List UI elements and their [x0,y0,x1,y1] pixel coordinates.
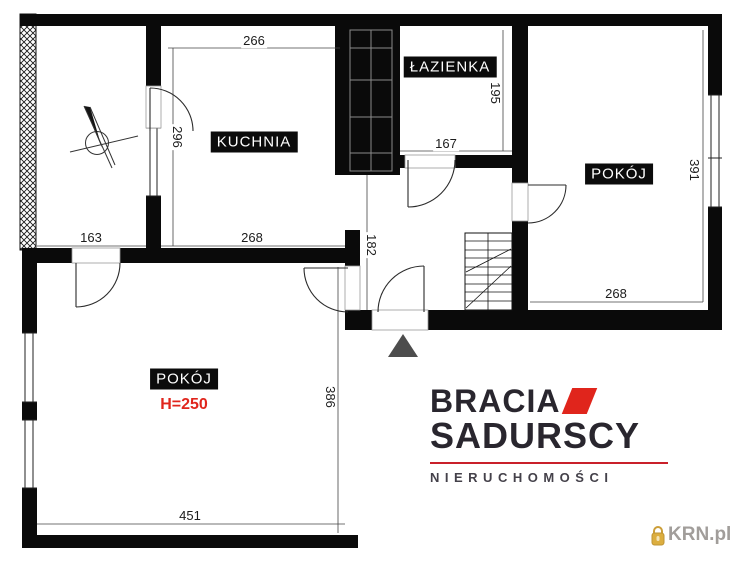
window-left-lower [22,420,37,488]
staircase [465,233,512,310]
logo-text-bracia: BRACIA [430,385,560,417]
door-room-left-from-balcony [76,263,120,307]
door-entry [378,266,424,312]
dim-balcony-bottom: 163 [78,231,104,245]
window-kitchen-internal [146,128,161,196]
dim-kitchen-left: 296 [170,124,184,150]
logo-divider [430,462,668,464]
room-label-bathroom: ŁAZIENKA [404,57,497,78]
room-label-room-right: POKÓJ [585,164,653,185]
dim-kitchen-top: 266 [241,34,267,48]
entrance-triangle-icon [388,334,418,357]
hatched-wall [20,14,36,250]
window-right [708,95,722,207]
logo-text-nieruchomosci: NIERUCHOMOŚCI [430,470,690,485]
dim-bathroom-bottom: 167 [433,137,459,151]
room-label-room-left: POKÓJ [150,369,218,390]
dim-room-left-bottom: 451 [177,509,203,523]
dim-room-right-side: 391 [687,157,701,183]
dim-room-left-side: 386 [323,384,337,410]
red-parallelogram-icon [562,388,598,414]
door-room-right [528,185,566,223]
agency-logo: BRACIA SADURSCY NIERUCHOMOŚCI [430,385,690,485]
dim-room-right-bottom: 268 [603,287,629,301]
ceiling-height-note: H=250 [158,396,210,414]
dim-hall: 182 [364,232,378,258]
logo-line1: BRACIA [430,385,690,417]
watermark-text: KRN.pl [668,524,731,546]
window-left-upper [22,333,37,402]
floor-plan-page: 266 296 163 268 167 195 182 391 268 386 … [0,0,740,561]
compass-needle-icon [70,106,138,168]
dim-kitchen-bottom: 268 [239,231,265,245]
room-label-kitchen: KUCHNIA [211,132,298,153]
logo-text-sadurscy: SADURSCY [430,417,690,455]
door-room-left-from-hall [304,268,348,312]
krn-watermark: KRN.pl [650,524,731,546]
gold-padlock-icon [650,525,666,546]
door-openings [72,86,528,330]
dim-bathroom-right: 195 [488,80,502,106]
